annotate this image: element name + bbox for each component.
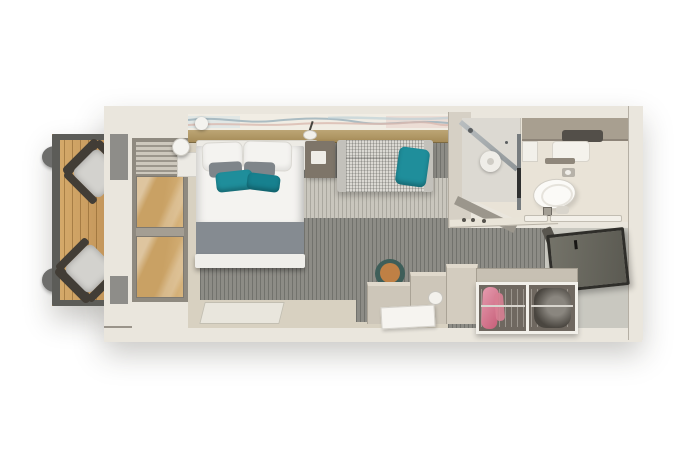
glass-shelf [522,141,538,162]
floor-mat [199,302,284,324]
dark-garment [534,288,571,328]
closet-divider [526,285,529,331]
wall-below-glass-door [132,300,188,328]
towel-bar-long [550,215,622,222]
stool-seat [380,263,400,283]
wall-pillar-top [110,134,128,180]
reading-lamp-icon [303,130,317,140]
sofa-teal-pillow [395,146,431,188]
desk-tray [380,305,435,330]
toiletry-dots [462,218,466,222]
towel-bar-short [524,215,548,222]
floorplan-image [0,0,695,463]
sofa-armrest-left [337,140,346,192]
shower-door-handle [517,168,521,198]
glass-pane-lower [136,236,184,298]
closet-rod-left [481,305,525,307]
bedside-lamp-icon [172,138,190,156]
shower-fitting-dot [468,128,473,133]
wall-art [188,114,448,130]
wardrobe [476,282,578,334]
wall-sconce-icon [195,117,208,130]
bath-scale [556,206,569,214]
wall-above-glass-door [132,112,188,140]
nightstand-card [311,151,326,164]
closet-rod-right [531,305,573,307]
wall-right [628,106,643,340]
shower-head-center [487,158,494,165]
glass-door-rail [136,228,184,236]
basin-ledge [545,158,575,164]
desk-section-high [446,264,478,324]
wall-pillar-bottom [110,276,128,304]
balcony-railing-left [52,134,60,306]
glass-pane-upper [136,176,184,228]
door-handle-stem [574,240,578,249]
bed-foot-bench [195,254,305,268]
kettle-icon [428,291,443,305]
bed-blanket [196,222,304,257]
toilet-paper-roll [565,170,571,175]
